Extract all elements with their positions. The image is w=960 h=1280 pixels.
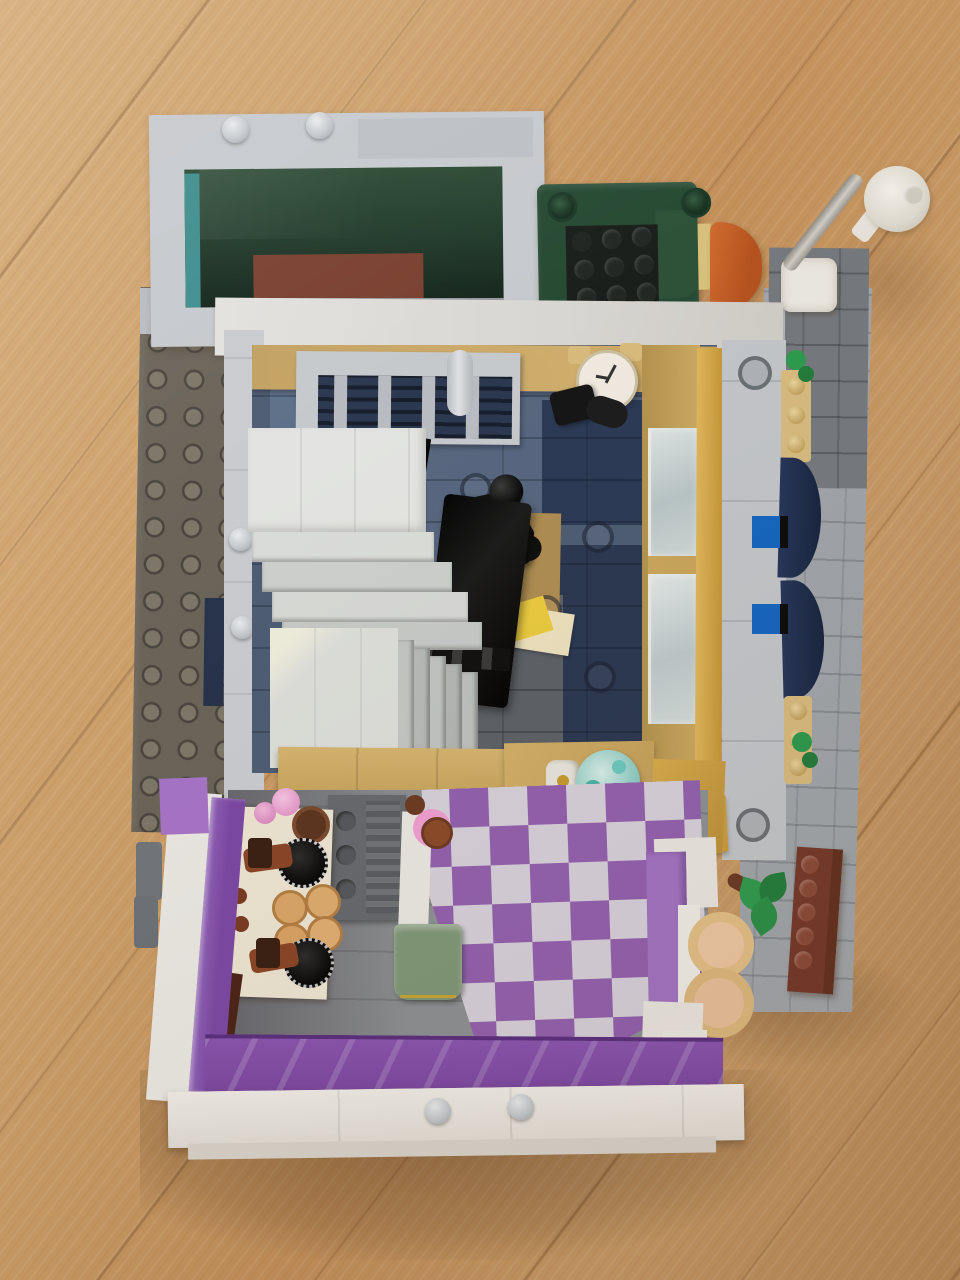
terrace-frame-tile: [358, 117, 533, 159]
brick-stud: [795, 927, 814, 946]
grinder-cap: [248, 838, 272, 868]
blue-brick: [752, 604, 788, 634]
clock-hand-minute: [605, 365, 617, 384]
nougat-bun: [305, 884, 341, 920]
armchair: [537, 181, 714, 319]
skylight-reflection: [199, 166, 503, 239]
wood-floor: [0, 0, 960, 1280]
oven-knob: [336, 845, 356, 865]
orange-seat: [710, 222, 762, 312]
skylight-opening: [184, 166, 503, 307]
tan-stud: [789, 702, 807, 720]
teal-wall-edge: [184, 174, 200, 308]
tan-stud: [787, 435, 805, 453]
anti-stud: [582, 521, 614, 553]
grinder-cap: [256, 938, 280, 968]
wall-stud: [425, 1098, 451, 1124]
tan-plate-studs: [781, 370, 811, 462]
gray-clip-piece: [136, 842, 162, 900]
coffee-grinder: [244, 832, 324, 888]
stair-upper-landing: [248, 428, 426, 532]
brick-stud: [800, 855, 819, 874]
nougat-bun: [272, 890, 308, 926]
gold-wall-edge: [695, 348, 723, 768]
oven-ribs: [366, 801, 400, 913]
navy-tile: [203, 598, 225, 706]
window-pane: [648, 428, 698, 556]
stair-tread: [252, 532, 434, 562]
brick-stud: [799, 879, 818, 898]
gray-clip-piece: [134, 896, 158, 948]
donut: [421, 817, 453, 849]
coffee-grinder: [248, 930, 330, 988]
brown-pastry: [405, 795, 425, 815]
right-exterior-wall: [722, 340, 786, 860]
hollow-stud: [738, 356, 772, 390]
frame-stud: [306, 112, 333, 139]
frame-stud: [222, 116, 249, 143]
brick-stud: [794, 951, 813, 970]
street-lamp-finial: [903, 184, 923, 204]
wall-stud: [231, 616, 254, 639]
oven-knob: [336, 811, 356, 831]
stair-tread: [272, 592, 468, 622]
blue-brick: [752, 516, 788, 548]
green-plant-bit: [792, 732, 812, 752]
stair-tread: [262, 562, 452, 592]
pink-cupcake: [254, 802, 276, 824]
green-plant-bit: [802, 752, 818, 768]
lavender-corner: [159, 777, 209, 835]
armchair-back-stud: [681, 187, 712, 218]
anti-stud: [584, 661, 616, 693]
green-plant-bit: [798, 366, 814, 382]
brick-stud: [797, 903, 816, 922]
window-pane: [648, 574, 698, 724]
wall-stud: [508, 1094, 534, 1120]
cabinet-gold-trim: [400, 995, 456, 998]
white-cylinder-piece: [447, 350, 473, 416]
crystal-bubble: [612, 760, 626, 774]
tan-stud: [787, 406, 805, 424]
armchair-arm-right: [655, 210, 699, 299]
sage-cabinet: [394, 924, 462, 1000]
hollow-stud: [736, 808, 770, 842]
green-plant: [725, 872, 795, 938]
window-mullion: [648, 556, 698, 574]
